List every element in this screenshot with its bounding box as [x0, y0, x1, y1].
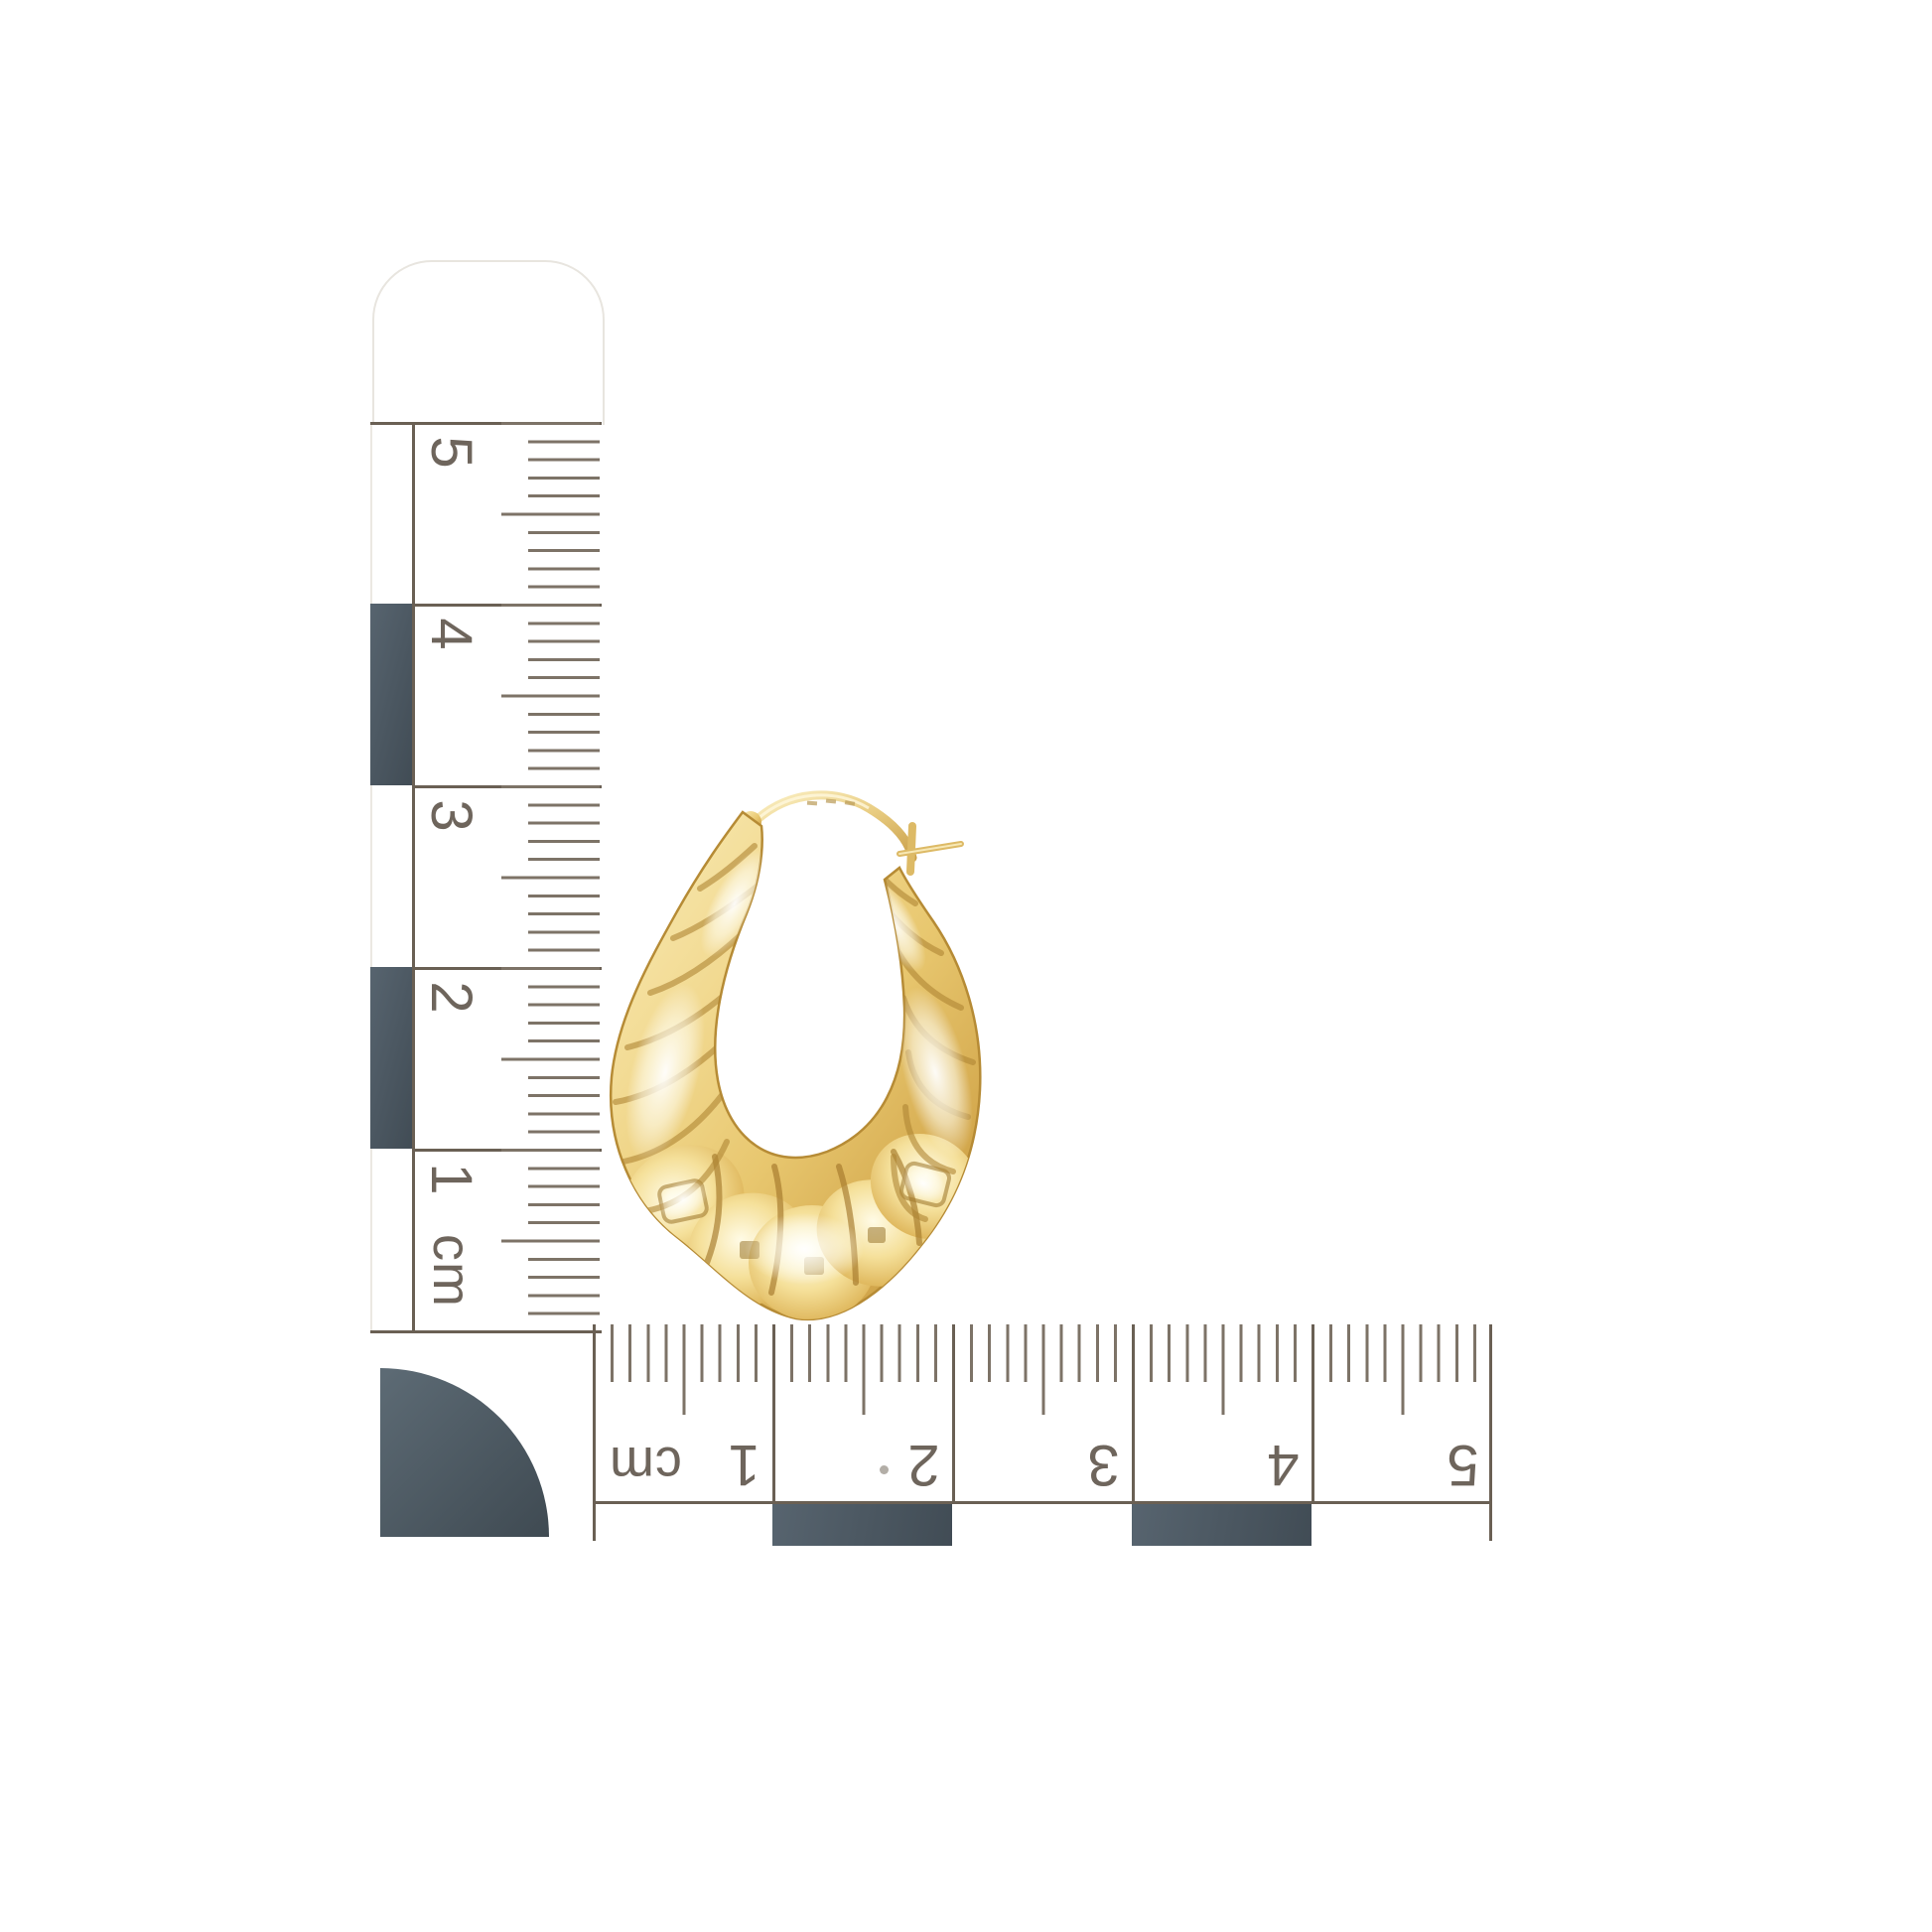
earring-latch-cross	[899, 826, 961, 872]
corner-quarter-circle-marker	[380, 1368, 549, 1537]
horizontal-ruler-block-1-2	[772, 1504, 952, 1546]
ruler-label: 4	[1238, 1421, 1327, 1510]
ruler-unit-label: cm	[407, 1226, 496, 1315]
vertical-ruler-end-cap	[372, 260, 605, 425]
vertical-ruler-left-edge	[370, 422, 372, 1330]
ruler-unit-label: cm	[601, 1421, 690, 1510]
vertical-ruler-block-4-3	[370, 604, 412, 785]
earring-image	[566, 774, 1042, 1350]
horizontal-ruler-left-end-line	[593, 1324, 596, 1541]
ruler-label: 3	[1058, 1421, 1148, 1510]
ruler-label: 1	[407, 1135, 496, 1224]
earring-clasp-wire	[740, 795, 912, 858]
ruler-label: 5	[1418, 1421, 1507, 1510]
dust-speck	[880, 1465, 889, 1474]
photo-canvas: 5 4 3 2 1 cm cm 1 2 3 4 5	[0, 0, 1932, 1932]
ruler-label: 5	[407, 408, 496, 497]
ruler-label: 2	[407, 953, 496, 1042]
ruler-label: 1	[699, 1421, 788, 1510]
vertical-ruler-block-2-1	[370, 967, 412, 1149]
ruler-label: 2	[879, 1421, 968, 1510]
ruler-label: 3	[407, 771, 496, 861]
horizontal-ruler-block-3-4	[1132, 1504, 1311, 1546]
ruler-label: 4	[407, 590, 496, 679]
